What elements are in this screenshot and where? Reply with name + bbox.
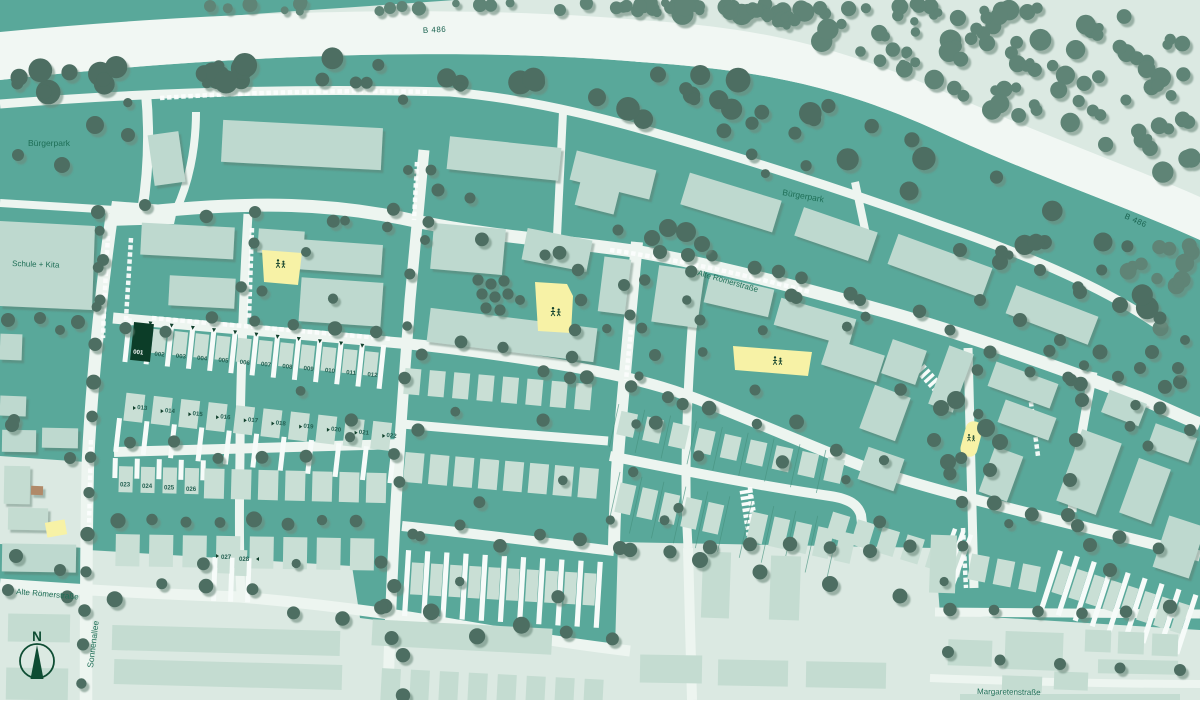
svg-text:014: 014 [164,407,175,415]
svg-text:Bürgerpark: Bürgerpark [28,138,71,148]
svg-text:006: 006 [239,359,250,367]
svg-text:Margaretenstraße: Margaretenstraße [977,687,1041,697]
svg-text:008: 008 [282,363,293,371]
svg-text:021: 021 [358,429,369,437]
svg-text:Schule + Kita: Schule + Kita [12,259,60,270]
svg-text:011: 011 [346,369,357,377]
svg-text:012: 012 [367,371,378,379]
svg-text:019: 019 [303,423,314,431]
svg-text:023: 023 [120,482,131,489]
svg-text:024: 024 [142,483,153,490]
svg-text:003: 003 [175,353,186,361]
svg-text:025: 025 [164,485,175,492]
svg-text:002: 002 [154,351,165,359]
svg-text:017: 017 [248,416,259,424]
svg-text:015: 015 [192,410,203,418]
svg-text:005: 005 [218,357,229,365]
svg-text:020: 020 [331,426,342,434]
svg-text:028: 028 [239,556,250,563]
svg-text:013: 013 [137,404,148,412]
svg-text:016: 016 [220,413,231,421]
svg-text:B 486: B 486 [423,25,447,35]
svg-text:N: N [32,629,42,644]
svg-text:018: 018 [275,420,286,428]
svg-text:010: 010 [324,367,335,375]
svg-text:004: 004 [197,355,208,363]
svg-text:001: 001 [133,349,144,357]
svg-text:022: 022 [386,432,397,440]
svg-text:009: 009 [303,365,314,373]
svg-text:026: 026 [186,486,197,493]
svg-text:007: 007 [261,361,272,369]
svg-text:027: 027 [221,554,232,561]
